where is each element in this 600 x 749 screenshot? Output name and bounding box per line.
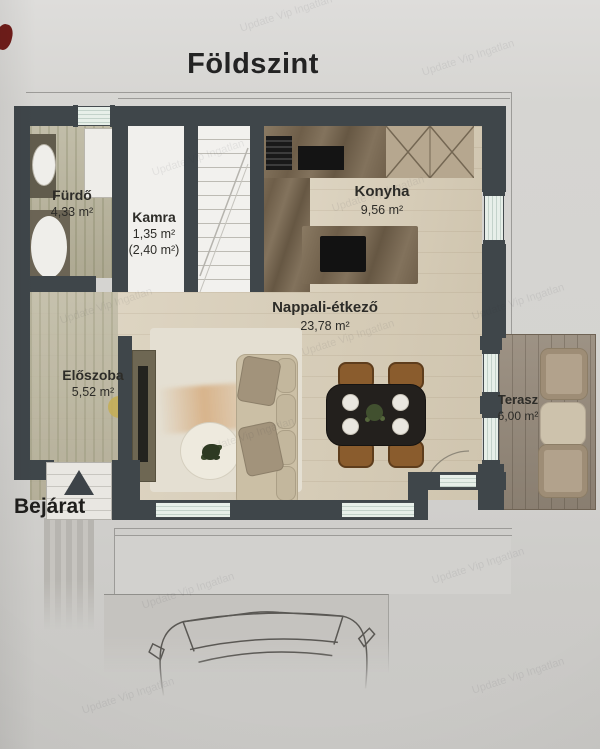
- wall-top: [112, 106, 506, 126]
- window-bottom-right: [436, 474, 480, 488]
- sofa-pillow: [236, 355, 281, 407]
- room-label-furdo: Fürdő 4,33 m²: [34, 186, 110, 220]
- plate: [392, 394, 409, 411]
- wall-hall-divider: [118, 336, 132, 472]
- tv: [138, 366, 148, 462]
- watermark: Update Vip Ingatlan: [471, 655, 566, 696]
- room-label-kamra: Kamra 1,35 m² (2,40 m²): [118, 208, 190, 259]
- terrace-lounge-chair: [538, 444, 588, 498]
- bath-sink: [32, 144, 56, 186]
- table-centerpiece: [366, 404, 383, 421]
- window-bottom: [338, 502, 418, 518]
- wall-right-mid: [482, 244, 506, 338]
- red-corner-mark: [0, 22, 15, 51]
- room-label-konyha: Konyha 9,56 m²: [330, 182, 434, 218]
- room-label-terasz: Terasz 6,00 m²: [486, 392, 550, 424]
- plate: [392, 418, 409, 435]
- plate: [342, 418, 359, 435]
- door-post: [250, 278, 264, 292]
- cabinet-x-pattern: [386, 126, 474, 178]
- front-yard-band: [115, 536, 511, 594]
- staircase: [198, 126, 250, 292]
- entrance-arrow-icon: [64, 470, 94, 495]
- watermark: Update Vip Ingatlan: [421, 37, 516, 78]
- cooktop: [298, 146, 344, 170]
- floor-plan-photo: Földszint: [0, 0, 600, 749]
- room-label-eloszoba: Előszoba 5,52 m²: [48, 366, 138, 400]
- island-sink: [320, 236, 366, 272]
- door-post: [184, 278, 198, 292]
- wall-bath-bottom: [30, 276, 96, 292]
- driveway: [44, 518, 94, 630]
- plot-outline: [118, 98, 510, 99]
- sofa-cushion: [276, 394, 296, 429]
- terrace-door-frame: [480, 336, 502, 350]
- sofa-cushion: [276, 466, 296, 501]
- watermark: Update Vip Ingatlan: [239, 0, 334, 35]
- entrance-label: Bejárat: [14, 495, 144, 519]
- room-label-nappali: Nappali-étkező 23,78 m²: [240, 298, 410, 334]
- plot-outline: [26, 92, 512, 93]
- wall-stairs-kitchen: [250, 126, 264, 292]
- window-top: [74, 106, 114, 126]
- upper-cabinets: [386, 126, 474, 178]
- bathtub: [31, 216, 67, 278]
- terrace-glass-door: [483, 350, 499, 396]
- wall-left: [14, 106, 30, 480]
- window-right: [484, 192, 504, 244]
- stairs-cut-line: [198, 126, 250, 292]
- vent-grill: [266, 136, 292, 170]
- page-title: Földszint: [123, 48, 383, 81]
- plot-outline: [511, 92, 512, 338]
- plate: [342, 394, 359, 411]
- car-outline: [146, 596, 379, 699]
- wall-right-upper: [482, 106, 506, 192]
- plot-outline: [114, 528, 512, 529]
- window-bottom: [152, 502, 234, 518]
- door-post: [112, 278, 128, 292]
